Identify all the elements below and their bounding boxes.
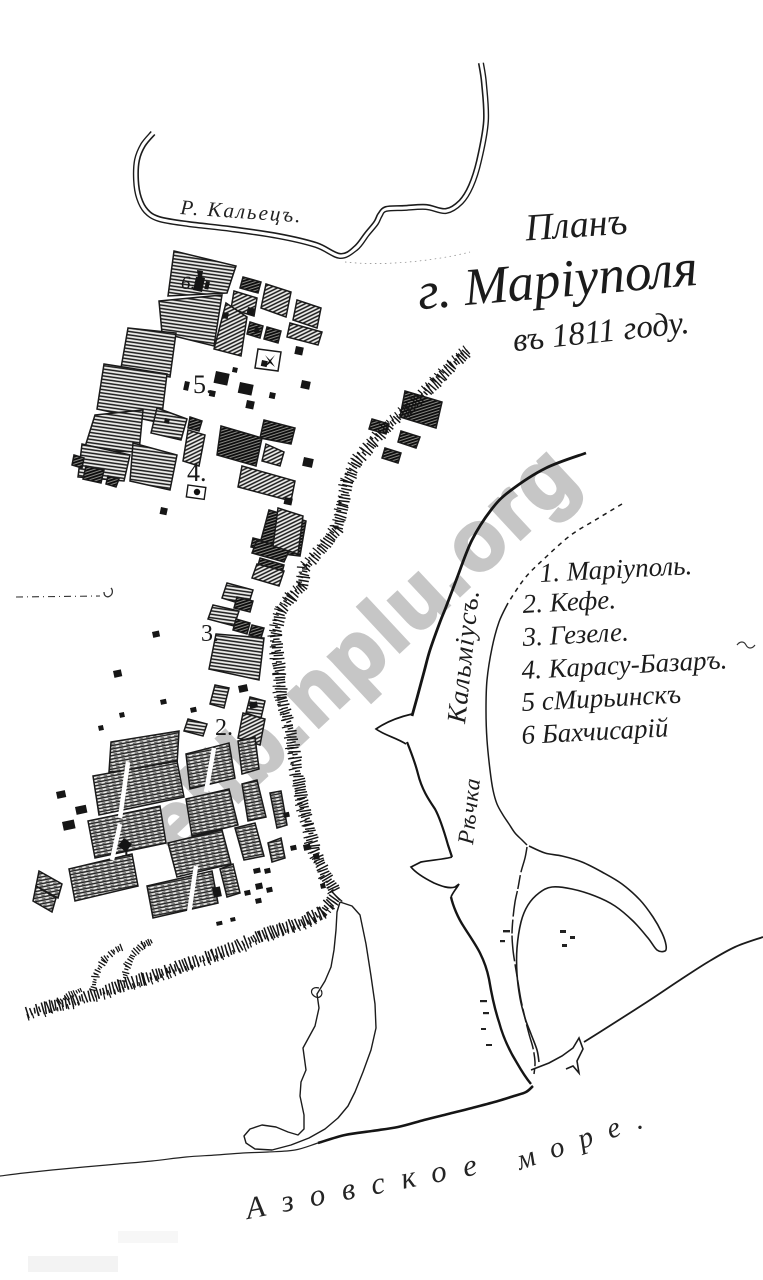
- svg-text:4.: 4.: [187, 458, 207, 487]
- svg-text:6.: 6.: [181, 273, 195, 294]
- svg-text:Планъ: Планъ: [523, 201, 629, 250]
- svg-text:3.: 3.: [201, 621, 219, 647]
- svg-text:5.: 5.: [193, 370, 213, 399]
- svg-text:3. Гезеле.: 3. Гезеле.: [521, 616, 630, 652]
- svg-text:2.: 2.: [215, 715, 233, 741]
- svg-text:2. Кефе.: 2. Кефе.: [522, 584, 617, 619]
